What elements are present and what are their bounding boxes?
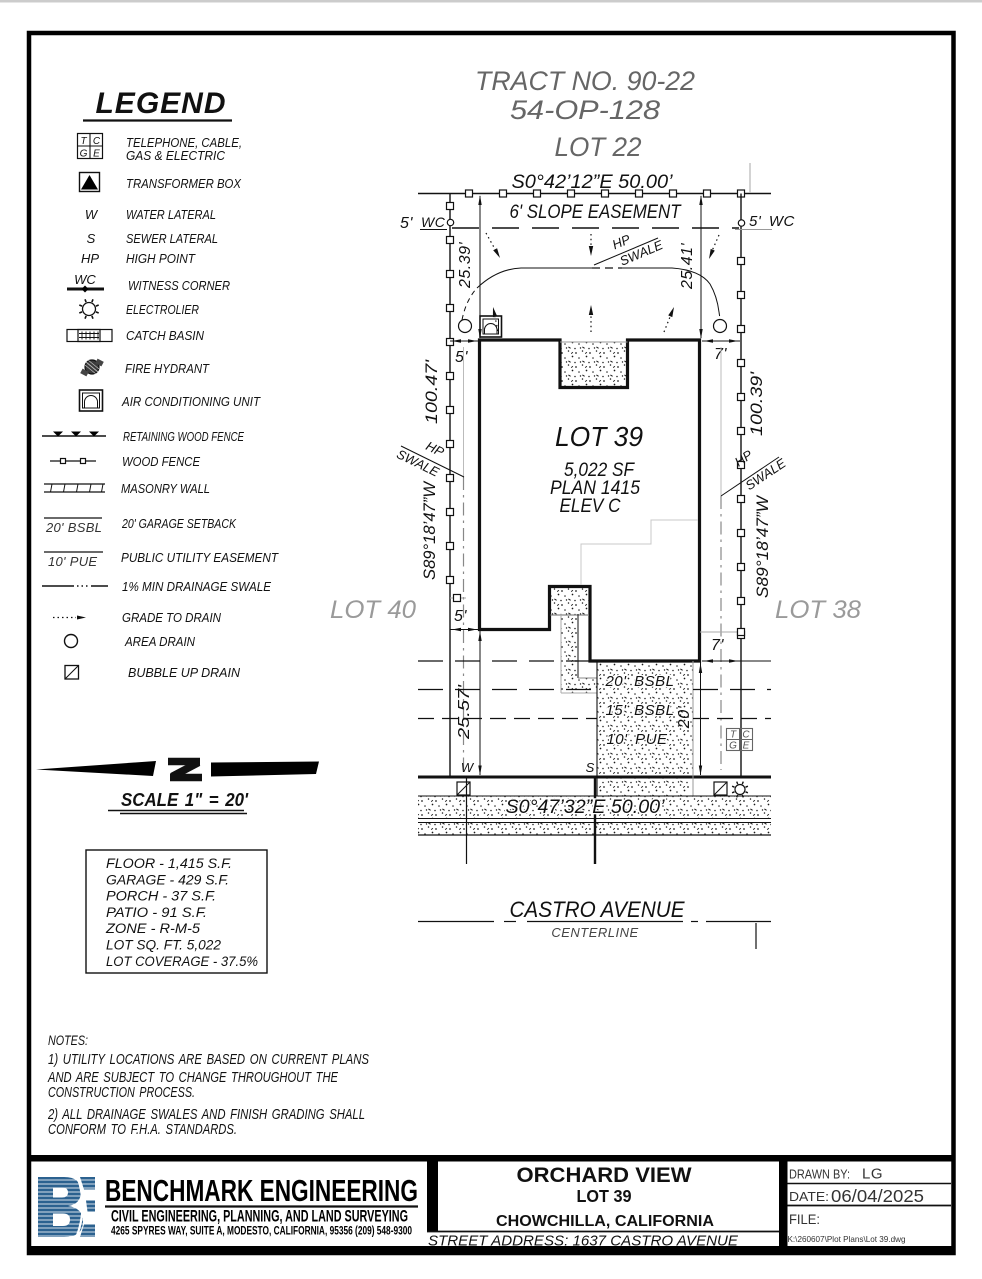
svg-text:10' PUE: 10' PUE [606, 731, 668, 748]
svg-text:E: E [743, 741, 750, 752]
svg-text:7': 7' [711, 637, 724, 654]
svg-text:BENCHMARK ENGINEERING: BENCHMARK ENGINEERING [105, 1173, 418, 1208]
svg-text:5': 5' [455, 349, 468, 366]
svg-text:LG: LG [862, 1166, 883, 1183]
svg-text:4265 SPYRES WAY, SUITE A, MODE: 4265 SPYRES WAY, SUITE A, MODESTO, CALIF… [111, 1224, 412, 1238]
svg-text:20': 20' [676, 705, 693, 729]
svg-text:S89°18’47”W: S89°18’47”W [753, 494, 772, 598]
svg-text:SEWER LATERAL: SEWER LATERAL [126, 231, 218, 246]
svg-text:CATCH BASIN: CATCH BASIN [126, 328, 205, 343]
svg-text:G: G [729, 741, 737, 752]
svg-text:DRAWN BY:: DRAWN BY: [789, 1167, 850, 1182]
svg-text:PORCH - 37 S.F.: PORCH - 37 S.F. [106, 889, 216, 904]
svg-text:ORCHARD VIEW: ORCHARD VIEW [517, 1164, 692, 1187]
svg-text:06/04/2025: 06/04/2025 [831, 1186, 924, 1206]
svg-text:S0°47’32”E 50.00’: S0°47’32”E 50.00’ [506, 797, 666, 818]
svg-text:T: T [80, 136, 87, 147]
svg-text:LOT 39: LOT 39 [555, 421, 643, 452]
svg-text:STREET ADDRESS: 1637 CASTR: STREET ADDRESS: 1637 CASTRO AVENUE [428, 1233, 739, 1250]
svg-text:FLOOR - 1,415 S.F.: FLOOR - 1,415 S.F. [106, 856, 232, 871]
svg-text:TRANSFORMER BOX: TRANSFORMER BOX [126, 176, 242, 191]
svg-text:1% MIN DRAINAGE SWALE: 1% MIN DRAINAGE SWALE [122, 579, 271, 594]
svg-text:LEGEND: LEGEND [95, 87, 226, 120]
svg-text:CHOWCHILLA, CALIFORNIA: CHOWCHILLA, CALIFORNIA [496, 1213, 714, 1230]
svg-text:WOOD FENCE: WOOD FENCE [122, 454, 200, 469]
svg-text:RETAINING WOOD FENCE: RETAINING WOOD FENCE [123, 429, 244, 444]
svg-text:5': 5' [454, 608, 467, 625]
svg-text:AREA DRAIN: AREA DRAIN [124, 634, 195, 649]
svg-text:WATER LATERAL: WATER LATERAL [126, 207, 216, 222]
svg-text:CONFORM TO F.H.A. STANDARDS.: CONFORM TO F.H.A. STANDARDS. [48, 1121, 237, 1138]
svg-text:25.41': 25.41' [679, 243, 696, 291]
svg-text:5' WC: 5' WC [749, 213, 795, 230]
svg-text:LOT 39: LOT 39 [577, 1186, 632, 1206]
svg-text:FIRE HYDRANT: FIRE HYDRANT [125, 361, 210, 376]
svg-text:C: C [742, 730, 750, 741]
svg-text:CENTERLINE: CENTERLINE [551, 925, 638, 940]
svg-text:PUBLIC UTILITY EASEMENT: PUBLIC UTILITY EASEMENT [121, 550, 279, 565]
svg-text:PATIO - 91 S.F.: PATIO - 91 S.F. [106, 905, 207, 920]
svg-text:6' SLOPE EASEMENT: 6' SLOPE EASEMENT [510, 202, 682, 223]
svg-text:SCALE 1" = 20': SCALE 1" = 20' [121, 790, 249, 810]
svg-text:DATE:: DATE: [789, 1189, 829, 1204]
svg-text:100.39': 100.39' [747, 371, 766, 436]
svg-text:54-OP-128: 54-OP-128 [510, 95, 660, 125]
svg-text:G: G [80, 149, 88, 160]
svg-text:W: W [85, 207, 99, 222]
svg-text:NOTES:: NOTES: [48, 1032, 88, 1048]
svg-text:AIR CONDITIONING UNIT: AIR CONDITIONING UNIT [121, 394, 261, 409]
svg-text:1) UTILITY LOCATIONS ARE BASED: 1) UTILITY LOCATIONS ARE BASED ON CURREN… [48, 1051, 369, 1068]
svg-text:CASTRO AVENUE: CASTRO AVENUE [510, 897, 685, 922]
svg-text:100.47': 100.47' [422, 359, 441, 424]
svg-text:FILE:: FILE: [789, 1212, 820, 1227]
svg-text:HP: HP [732, 447, 756, 470]
svg-text:W: W [461, 760, 475, 775]
svg-text:S: S [87, 231, 96, 246]
svg-text:WC: WC [421, 214, 446, 230]
svg-text:HP: HP [81, 251, 99, 266]
svg-text:ELECTROLIER: ELECTROLIER [126, 302, 199, 317]
svg-text:CONSTRUCTION PROCESS.: CONSTRUCTION PROCESS. [48, 1084, 195, 1101]
svg-text:25.57': 25.57' [456, 684, 473, 740]
svg-text:C: C [93, 136, 101, 147]
svg-text:HIGH POINT: HIGH POINT [126, 251, 196, 266]
svg-text:15' BSBL: 15' BSBL [605, 702, 674, 719]
svg-text:HP: HP [424, 438, 447, 460]
svg-text:TRACT NO. 90-22: TRACT NO. 90-22 [475, 66, 695, 96]
svg-text:BUBBLE UP DRAIN: BUBBLE UP DRAIN [128, 665, 241, 680]
svg-text:GRADE TO DRAIN: GRADE TO DRAIN [122, 610, 222, 625]
svg-text:GAS & ELECTRIC: GAS & ELECTRIC [126, 148, 226, 163]
svg-text:20' GARAGE SETBACK: 20' GARAGE SETBACK [121, 516, 237, 531]
svg-text:LOT 22: LOT 22 [555, 132, 642, 162]
svg-text:GARAGE - 429 S.F.: GARAGE - 429 S.F. [106, 872, 229, 887]
svg-text:WC: WC [74, 272, 96, 287]
svg-text:S: S [586, 760, 595, 775]
svg-text:K:\260607\Plot Plans\Lot 39.dw: K:\260607\Plot Plans\Lot 39.dwg [788, 1234, 906, 1244]
svg-text:LOT 40: LOT 40 [330, 596, 416, 624]
svg-text:S0°42’12”E 50.00’: S0°42’12”E 50.00’ [512, 172, 674, 193]
svg-text:WITNESS CORNER: WITNESS CORNER [128, 278, 230, 293]
svg-text:LOT SQ. FT. 5,022: LOT SQ. FT. 5,022 [106, 938, 221, 953]
svg-text:T: T [730, 730, 737, 741]
svg-text:5': 5' [400, 215, 413, 232]
svg-text:E: E [93, 149, 100, 160]
svg-text:ELEV C: ELEV C [560, 496, 621, 517]
svg-text:LOT COVERAGE - 37.5%: LOT COVERAGE - 37.5% [106, 954, 258, 969]
svg-text:S89°18’47”W: S89°18’47”W [420, 480, 439, 580]
svg-text:MASONRY WALL: MASONRY WALL [121, 481, 210, 496]
svg-text:ZONE - R-M-5: ZONE - R-M-5 [105, 921, 201, 936]
svg-text:20' BSBL: 20' BSBL [604, 673, 674, 690]
svg-text:20' BSBL: 20' BSBL [45, 520, 102, 535]
svg-text:10' PUE: 10' PUE [48, 554, 97, 569]
svg-text:LOT 38: LOT 38 [775, 596, 861, 624]
svg-text:25.39': 25.39' [457, 242, 474, 290]
